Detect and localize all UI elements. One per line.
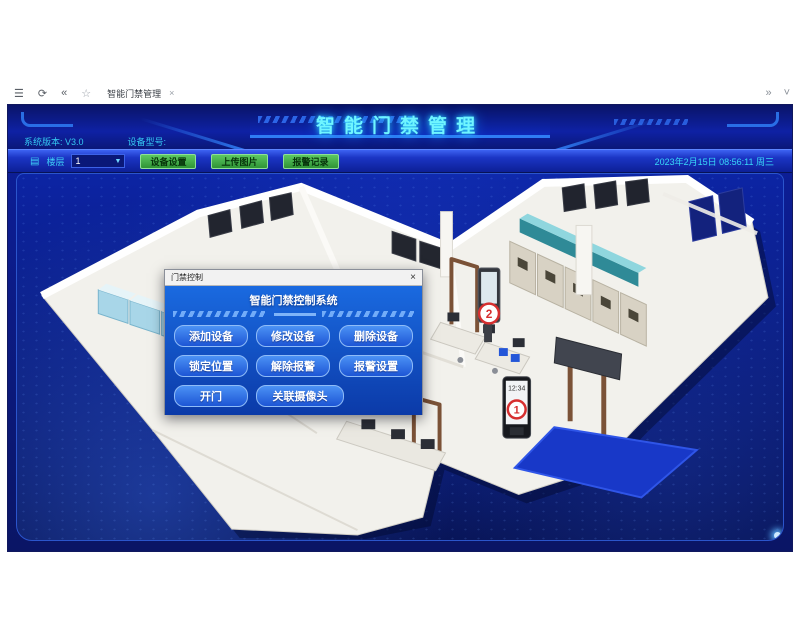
- bookmark-star-icon[interactable]: ☆: [81, 87, 91, 100]
- dialog-titlebar[interactable]: 门禁控制 ×: [165, 270, 422, 286]
- app-header: 智能门禁管理 系统版本: V3.0 设备型号:: [8, 105, 792, 149]
- dialog-heading-underline: [274, 313, 316, 316]
- alarm-record-button[interactable]: 报警记录: [283, 154, 339, 169]
- system-info: 系统版本: V3.0 设备型号:: [24, 135, 166, 148]
- browser-toolbar: ☰ ⟳ « ☆ 智能门禁管理 × » ˅: [0, 82, 800, 104]
- upload-image-button[interactable]: 上传图片: [211, 154, 267, 169]
- alarm-settings-button[interactable]: 报警设置: [339, 355, 413, 377]
- menu-icon[interactable]: ☰: [14, 87, 24, 100]
- chevron-down-icon[interactable]: ˅: [784, 87, 790, 99]
- page-title: 智能门禁管理: [8, 111, 792, 138]
- device-1-time: 12:34: [508, 386, 525, 393]
- dialog-title: 门禁控制: [171, 272, 203, 283]
- delete-device-button[interactable]: 删除设备: [339, 325, 413, 347]
- system-version-label: 系统版本: V3.0: [24, 135, 84, 148]
- back-icon[interactable]: «: [61, 87, 67, 99]
- device-2-badge: 2: [486, 307, 493, 321]
- floor-select[interactable]: 1 ▼: [71, 154, 125, 168]
- toolbar: ▤ 楼层 1 ▼ 设备设置 上传图片 报警记录 2023年2月15日 08:56…: [8, 149, 792, 173]
- column-2: [576, 225, 592, 294]
- add-device-button[interactable]: 添加设备: [174, 325, 248, 347]
- floor-select-value: 1: [75, 156, 80, 166]
- browser-tab[interactable]: 智能门禁管理 ×: [107, 87, 174, 100]
- dialog-close-icon[interactable]: ×: [410, 273, 416, 283]
- tab-title: 智能门禁管理: [107, 87, 161, 100]
- dialog-body: 智能门禁控制系统 添加设备 修改设备 删除设备 锁定位置 解除报警 报警设置 开…: [165, 286, 422, 415]
- open-door-button[interactable]: 开门: [174, 385, 248, 407]
- dialog-decoration-left: [173, 311, 265, 317]
- lock-position-button[interactable]: 锁定位置: [174, 355, 248, 377]
- datetime-display: 2023年2月15日 08:56:11 周三: [655, 155, 774, 168]
- floor-label: 楼层: [46, 155, 64, 168]
- floor-icon: ▤: [30, 156, 39, 167]
- browser-right-icons: » ˅: [765, 82, 790, 104]
- face-terminal-device[interactable]: 12:34 1: [503, 377, 531, 438]
- access-control-dialog: 门禁控制 × 智能门禁控制系统 添加设备 修改设备 删除设备 锁定位置 解除报警…: [164, 269, 423, 415]
- modify-device-button[interactable]: 修改设备: [256, 325, 330, 347]
- clear-alarm-button[interactable]: 解除报警: [256, 355, 330, 377]
- dialog-heading: 智能门禁控制系统: [165, 292, 422, 308]
- panel-glow-dot: [774, 532, 781, 539]
- device-settings-button[interactable]: 设备设置: [140, 154, 196, 169]
- select-caret-icon: ▼: [115, 158, 122, 165]
- tab-close-icon[interactable]: ×: [169, 88, 174, 98]
- device-1-badge: 1: [514, 404, 520, 416]
- device-model-label: 设备型号:: [128, 135, 167, 148]
- overflow-icon[interactable]: »: [765, 87, 771, 99]
- dialog-decoration-right: [322, 311, 414, 317]
- app-window: 智能门禁管理 系统版本: V3.0 设备型号: ▤ 楼层 1 ▼ 设备设置 上传…: [7, 104, 793, 552]
- screenshot-root: ☰ ⟳ « ☆ 智能门禁管理 × » ˅ 智能门禁管理 系统版本: V3.0 设…: [0, 0, 800, 642]
- refresh-icon[interactable]: ⟳: [38, 87, 47, 100]
- link-camera-button[interactable]: 关联摄像头: [256, 385, 344, 407]
